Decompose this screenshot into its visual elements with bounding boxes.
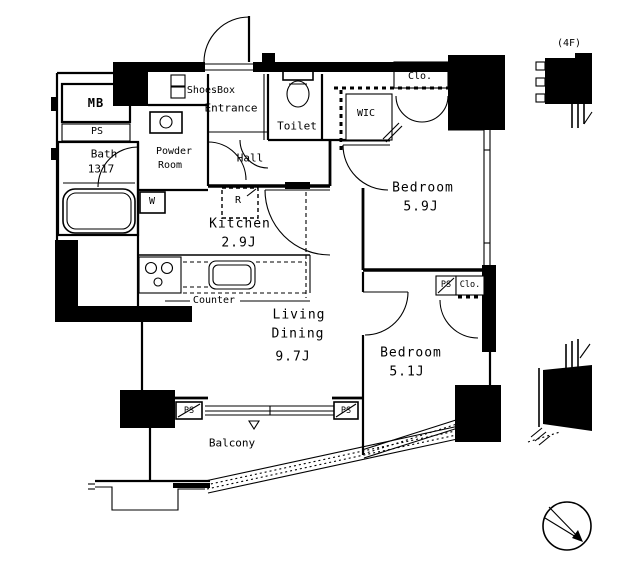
stove-icon — [139, 257, 181, 293]
closet-label-right: Clo. — [460, 281, 480, 290]
pipe-space-label-left: PS — [91, 127, 103, 137]
room-label-hall: Hall — [237, 153, 264, 164]
room-size-bedroom1: 5.9J — [403, 201, 438, 214]
shoes-cabinet-icon — [171, 75, 185, 98]
room-label-powder-2: Room — [158, 161, 182, 171]
pipe-space-label-bl: PS — [184, 407, 194, 416]
floorplan-canvas: MB PS Bath 1317 Powder Room ShoesBox Ent… — [0, 0, 640, 569]
building-key-plan-lower — [528, 339, 592, 445]
counter-label: Counter — [193, 296, 235, 306]
room-label-bath: Bath — [91, 149, 118, 160]
vent-mark-icon — [249, 421, 259, 429]
room-label-living-2: Dining — [272, 328, 325, 341]
washer-label: W — [149, 197, 155, 207]
room-label-bedroom1: Bedroom — [392, 182, 454, 195]
room-label-kitchen: Kitchen — [209, 218, 271, 231]
room-size-kitchen: 2.9J — [221, 237, 256, 250]
meter-box-label: MB — [88, 97, 104, 109]
pipe-space-label-br: PS — [341, 407, 351, 416]
room-size-bath: 1317 — [88, 164, 115, 175]
building-key-plan-upper — [536, 53, 592, 128]
north-compass-icon — [543, 502, 591, 550]
balcony-railing — [88, 426, 462, 510]
bathtub-icon — [63, 183, 135, 233]
room-label-bedroom2: Bedroom — [380, 347, 442, 360]
floorplan-drawing — [0, 0, 640, 569]
sink-icon — [209, 261, 255, 289]
room-label-wic: WIC — [357, 109, 375, 119]
closet-label-top: Clo. — [408, 72, 432, 82]
toilet-icon — [283, 66, 313, 107]
room-label-entrance: Entrance — [205, 103, 258, 114]
pipe-space-label-right: PS — [441, 281, 451, 290]
room-size-living: 9.7J — [275, 351, 310, 364]
room-size-bedroom2: 5.1J — [389, 366, 424, 379]
refrigerator-label: R — [235, 196, 241, 206]
structural-walls — [51, 53, 505, 488]
floor-tag: (4F) — [557, 39, 581, 49]
room-label-balcony: Balcony — [209, 438, 255, 449]
room-label-shoesbox: ShoesBox — [187, 86, 235, 96]
room-label-living-1: Living — [273, 309, 326, 322]
room-label-toilet: Toilet — [277, 121, 317, 132]
room-label-powder-1: Powder — [156, 147, 192, 157]
vanity-icon — [150, 112, 182, 133]
